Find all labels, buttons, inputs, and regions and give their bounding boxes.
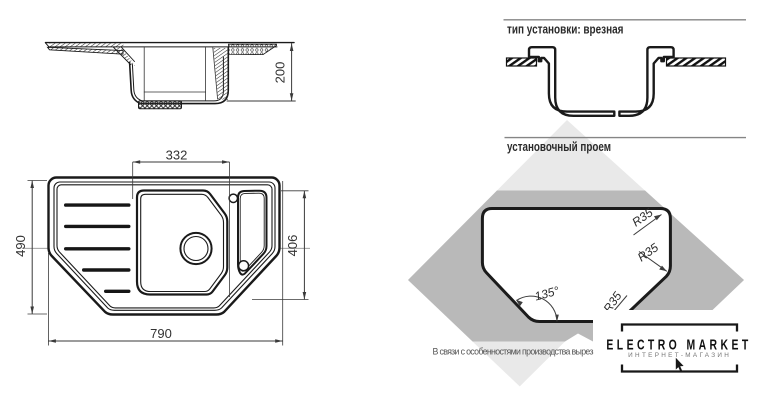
svg-text:В связи с особенностями произв: В связи с особенностями производства выр… <box>433 347 594 357</box>
svg-text:тип установки: врезная: тип установки: врезная <box>507 22 624 37</box>
svg-text:ИНТЕРНЕТ-МАГАЗИН: ИНТЕРНЕТ-МАГАЗИН <box>628 352 731 359</box>
svg-text:406: 406 <box>285 235 300 257</box>
svg-text:ELECTRO MARKET: ELECTRO MARKET <box>606 336 751 353</box>
svg-text:установочный проем: установочный проем <box>507 139 611 154</box>
svg-text:200: 200 <box>272 62 287 84</box>
svg-text:790: 790 <box>150 326 172 341</box>
svg-text:490: 490 <box>13 235 28 257</box>
svg-text:332: 332 <box>166 148 188 163</box>
